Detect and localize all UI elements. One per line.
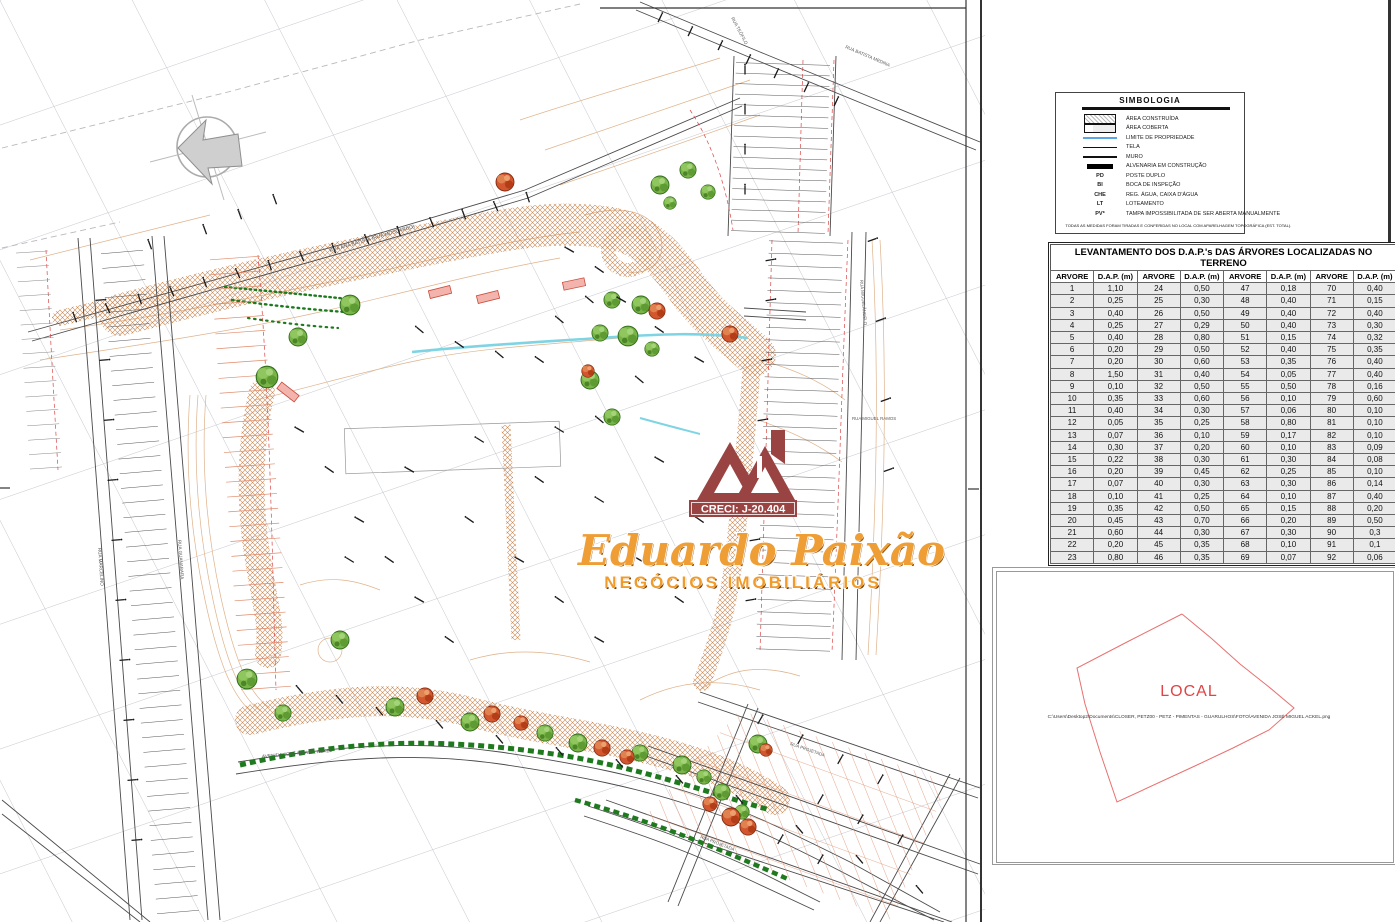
- dap-table-row: 230,80460,35690,07920,06: [1051, 551, 1395, 563]
- dap-table-row: 180,10410,25640,10870,40: [1051, 490, 1395, 502]
- legend-code: CHE: [1074, 192, 1126, 198]
- sw-solid-icon: [1074, 164, 1126, 169]
- legend-item: ÁREA COBERTA: [1056, 124, 1244, 134]
- legend-items: ÁREA CONSTRUÍDAÁREA COBERTALIMITE DE PRO…: [1056, 114, 1244, 219]
- legend-code: BI: [1074, 182, 1126, 188]
- dap-survey-table: LEVANTAMENTO DOS D.A.P.'s DAS ÁRVORES LO…: [1048, 242, 1395, 566]
- dap-table: ARVORED.A.P. (m)ARVORED.A.P. (m)ARVORED.…: [1050, 270, 1395, 564]
- legend-title: SIMBOLOGIA: [1056, 96, 1244, 105]
- dap-col-header: ARVORE: [1224, 271, 1267, 283]
- dap-table-row: 200,45430,70660,20890,50: [1051, 515, 1395, 527]
- legend-code: PV*: [1074, 211, 1126, 217]
- dap-table-row: 90,10320,50550,50780,16: [1051, 380, 1395, 392]
- dap-table-body: 11,10240,50470,18700,4020,25250,30480,40…: [1051, 283, 1395, 564]
- dap-table-header: ARVORED.A.P. (m)ARVORED.A.P. (m)ARVORED.…: [1051, 271, 1395, 283]
- dap-table-row: 120,05350,25580,80810,10: [1051, 417, 1395, 429]
- dap-col-header: D.A.P. (m): [1094, 271, 1137, 283]
- dap-table-row: 140,30370,20600,10830,09: [1051, 441, 1395, 453]
- legend-item: PV*TAMPA IMPOSSIBILITADA DE SER ABERTA M…: [1056, 209, 1244, 219]
- location-inset-frame: LOCAL C:\Users\Desktop2\Documents\CLOSER…: [996, 571, 1394, 863]
- legend-item: LTLOTEAMENTO: [1056, 200, 1244, 210]
- sw-thin-icon: [1074, 147, 1126, 148]
- sw-hatch-icon: [1074, 114, 1126, 124]
- dap-table-row: 210,60440,30670,30900,3: [1051, 527, 1395, 539]
- dap-table-row: 20,25250,30480,40710,15: [1051, 295, 1395, 307]
- dap-table-row: 30,40260,50490,40720,40: [1051, 307, 1395, 319]
- panel-separator-line: [980, 0, 982, 922]
- legend-code: PD: [1074, 173, 1126, 179]
- site-plan-sheet: RUA ANA BATISTA (RUA MOSCARDO) RUA TEÓFI…: [0, 0, 1395, 922]
- legend-title-underline: [1082, 107, 1230, 110]
- dap-col-header: D.A.P. (m): [1353, 271, 1395, 283]
- street-label-right-mid: RUA MIGUEL RAMOS: [852, 416, 896, 421]
- legend-item: CHEREG. ÁGUA, CAIXA D'ÁGUA: [1056, 190, 1244, 200]
- parcel-outline: [1077, 614, 1294, 802]
- dap-table-row: 160,20390,45620,25850,10: [1051, 466, 1395, 478]
- dap-table-row: 150,22380,30610,30840,08: [1051, 454, 1395, 466]
- legend-footnote: TODAS AS MEDIDAS FORAM TIRADAS E CONFERI…: [1064, 223, 1237, 228]
- legend-item: ALVENARIA EM CONSTRUÇÃO: [1056, 162, 1244, 172]
- sw-blue-icon: [1074, 137, 1126, 139]
- dap-table-row: 190,35420,50650,15880,20: [1051, 502, 1395, 514]
- legend-item: BIBOCA DE INSPEÇÃO: [1056, 181, 1244, 191]
- legend-code: LT: [1074, 201, 1126, 207]
- dap-col-header: ARVORE: [1051, 271, 1094, 283]
- dap-col-header: D.A.P. (m): [1180, 271, 1223, 283]
- legend-item: PDPOSTE DUPLO: [1056, 171, 1244, 181]
- dap-table-row: 220,20450,35680,10910,1: [1051, 539, 1395, 551]
- dap-table-title: LEVANTAMENTO DOS D.A.P.'s DAS ÁRVORES LO…: [1050, 244, 1395, 270]
- dap-table-row: 110,40340,30570,06800,10: [1051, 405, 1395, 417]
- location-inset: LOCAL C:\Users\Desktop2\Documents\CLOSER…: [992, 567, 1395, 865]
- legend-item: MURO: [1056, 152, 1244, 162]
- dap-table-row: 100,35330,60560,10790,60: [1051, 393, 1395, 405]
- local-title: LOCAL: [1160, 683, 1217, 700]
- sw-cover-icon: [1074, 124, 1126, 133]
- dap-table-row: 70,20300,60530,35760,40: [1051, 356, 1395, 368]
- location-inset-map: LOCAL C:\Users\Desktop2\Documents\CLOSER…: [997, 572, 1385, 852]
- dap-table-row: 60,20290,50520,40750,35: [1051, 344, 1395, 356]
- dap-col-header: ARVORE: [1310, 271, 1353, 283]
- dap-col-header: ARVORE: [1137, 271, 1180, 283]
- dap-table-row: 11,10240,50470,18700,40: [1051, 283, 1395, 295]
- dap-table-row: 50,40280,80510,15740,32: [1051, 332, 1395, 344]
- legend-item: LIMITE DE PROPRIEDADE: [1056, 133, 1244, 143]
- symbology-legend: SIMBOLOGIA ÁREA CONSTRUÍDAÁREA COBERTALI…: [1055, 92, 1245, 234]
- local-path-text: C:\Users\Desktop2\Documents\CLOSER, PETZ…: [1048, 713, 1331, 720]
- legend-item: ÁREA CONSTRUÍDA: [1056, 114, 1244, 124]
- dap-table-row: 130,07360,10590,17820,10: [1051, 429, 1395, 441]
- dap-col-header: D.A.P. (m): [1267, 271, 1310, 283]
- sw-thick-icon: [1074, 156, 1126, 159]
- legend-item: TELA: [1056, 143, 1244, 153]
- dap-table-row: 40,25270,29500,40730,30: [1051, 319, 1395, 331]
- survey-plan-drawing: RUA ANA BATISTA (RUA MOSCARDO) RUA TEÓFI…: [0, 0, 985, 922]
- dap-table-row: 170,07400,30630,30860,14: [1051, 478, 1395, 490]
- dap-table-row: 81,50310,40540,05770,40: [1051, 368, 1395, 380]
